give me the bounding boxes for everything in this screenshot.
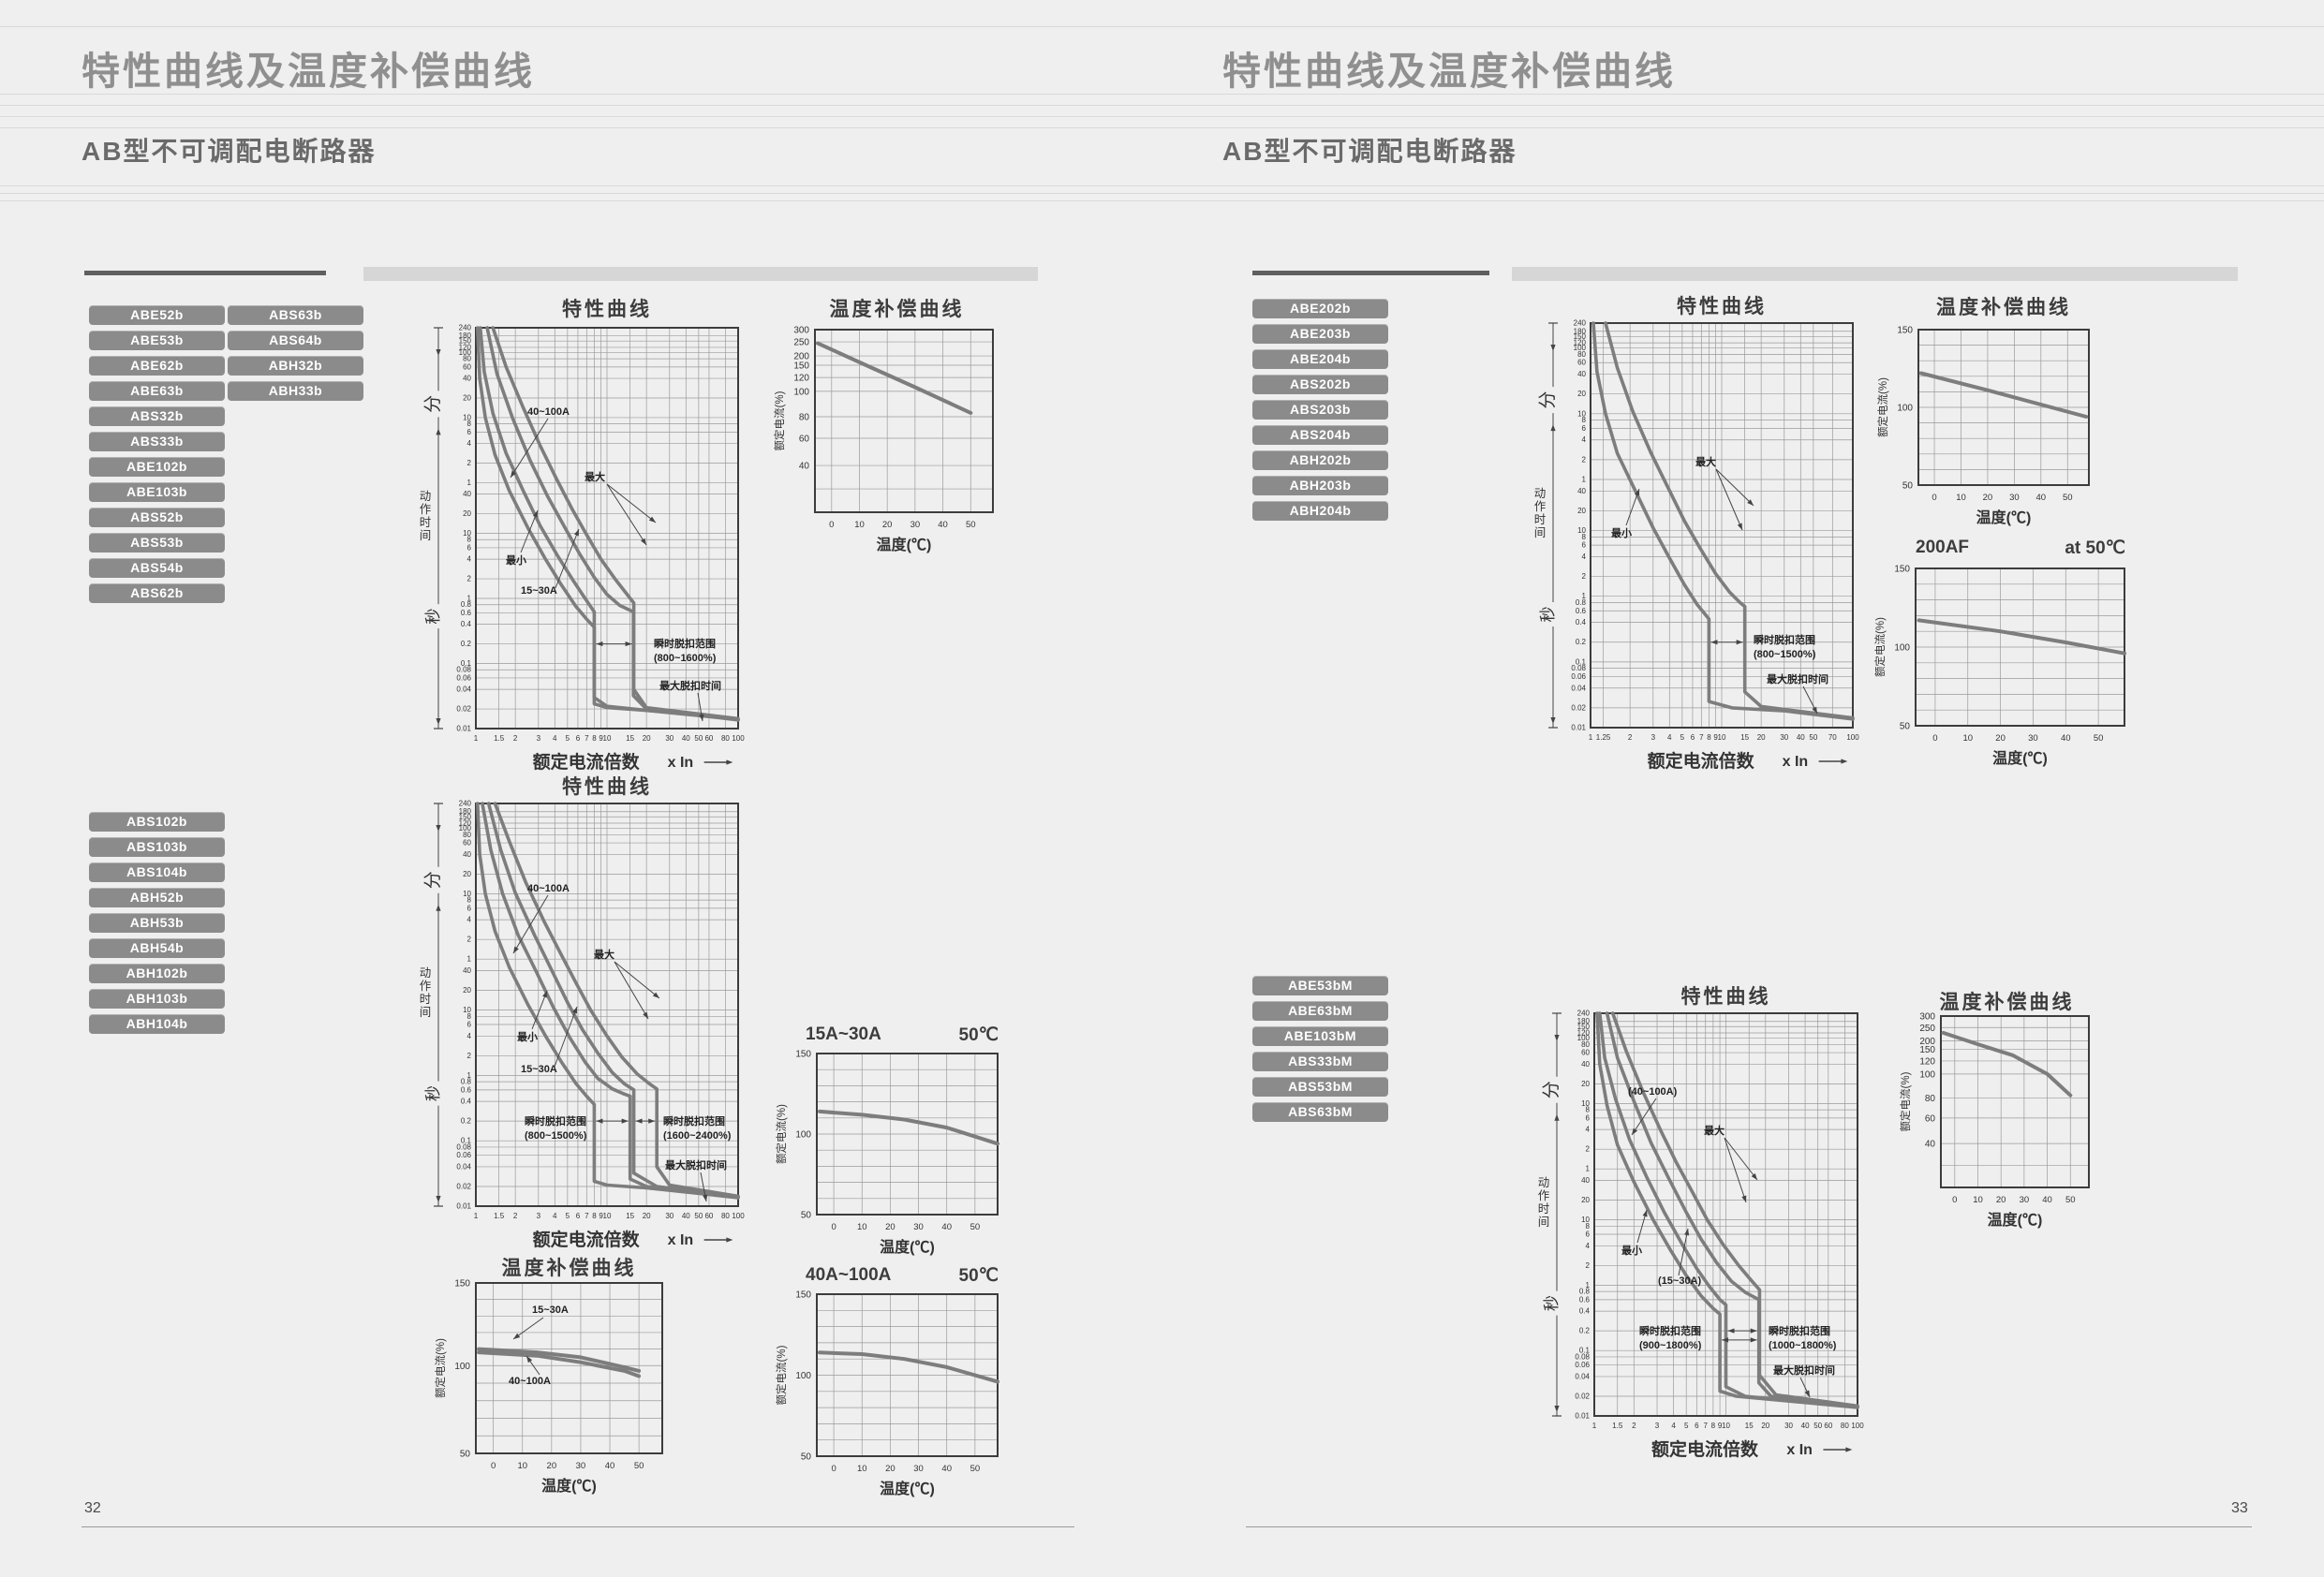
svg-text:60: 60 xyxy=(463,839,471,847)
svg-text:时: 时 xyxy=(420,516,432,529)
svg-text:40: 40 xyxy=(463,490,471,498)
svg-text:30: 30 xyxy=(2020,1195,2030,1205)
svg-text:20: 20 xyxy=(643,1212,651,1220)
svg-text:2: 2 xyxy=(1628,733,1633,742)
svg-text:8: 8 xyxy=(467,1012,472,1021)
svg-text:最大: 最大 xyxy=(585,470,605,483)
svg-text:50: 50 xyxy=(970,1222,981,1232)
svg-text:1: 1 xyxy=(474,734,479,743)
svg-text:8: 8 xyxy=(1586,1222,1591,1231)
svg-text:40: 40 xyxy=(1797,733,1805,742)
svg-text:分: 分 xyxy=(422,395,443,413)
svg-text:2: 2 xyxy=(513,1212,518,1220)
svg-text:240: 240 xyxy=(459,800,472,808)
svg-text:4: 4 xyxy=(1582,553,1587,561)
svg-text:0: 0 xyxy=(829,520,834,530)
svg-text:150: 150 xyxy=(795,1290,811,1301)
pinstripe xyxy=(0,185,2324,186)
svg-text:1.25: 1.25 xyxy=(1596,733,1611,742)
svg-text:4: 4 xyxy=(467,439,472,448)
model-badge: ABE53bM xyxy=(1252,976,1388,995)
svg-text:间: 间 xyxy=(420,1006,432,1019)
left-chart-40a-100a: 0102030405015010050额定电流(%)温度(℃) xyxy=(768,1281,1013,1516)
svg-text:4: 4 xyxy=(467,555,472,564)
svg-text:1: 1 xyxy=(474,1212,479,1220)
svg-text:20: 20 xyxy=(463,986,471,995)
model-badge: ABE62b xyxy=(89,356,225,376)
svg-text:间: 间 xyxy=(420,529,432,542)
model-badge: ABS102b xyxy=(89,812,225,832)
svg-text:20: 20 xyxy=(463,394,471,403)
svg-text:10: 10 xyxy=(857,1222,867,1232)
svg-text:50: 50 xyxy=(460,1450,471,1460)
svg-text:作: 作 xyxy=(1534,500,1547,513)
svg-text:1: 1 xyxy=(1582,475,1587,483)
svg-text:30: 30 xyxy=(2028,733,2038,744)
svg-text:10: 10 xyxy=(1956,493,1966,503)
svg-text:100: 100 xyxy=(1894,643,1910,654)
svg-text:4: 4 xyxy=(1586,1126,1591,1134)
svg-text:10: 10 xyxy=(1962,733,1973,744)
section-bar-left xyxy=(363,267,1038,281)
model-badge: ABH103b xyxy=(89,989,225,1009)
svg-text:80: 80 xyxy=(463,831,471,839)
svg-text:15: 15 xyxy=(1740,733,1749,742)
svg-text:50: 50 xyxy=(1813,1422,1822,1430)
pinstripe xyxy=(0,193,2324,194)
svg-text:0: 0 xyxy=(1932,493,1936,503)
svg-text:60: 60 xyxy=(1925,1113,1936,1124)
footer-rule-left xyxy=(81,1526,1074,1527)
svg-text:50: 50 xyxy=(2063,493,2073,503)
svg-text:动: 动 xyxy=(420,966,432,980)
svg-text:100: 100 xyxy=(454,1362,470,1372)
svg-text:60: 60 xyxy=(704,1212,713,1220)
svg-text:温度(℃): 温度(℃) xyxy=(879,1238,935,1256)
svg-text:50: 50 xyxy=(694,1212,703,1220)
svg-text:40: 40 xyxy=(2061,733,2071,744)
svg-text:瞬时脱扣范围: 瞬时脱扣范围 xyxy=(663,1114,725,1127)
svg-text:30: 30 xyxy=(2009,493,2020,503)
svg-text:0.06: 0.06 xyxy=(456,673,471,682)
svg-text:最小: 最小 xyxy=(506,553,526,567)
page-number-left: 32 xyxy=(84,1500,101,1517)
page-subtitle-left: AB型不可调配电断路器 xyxy=(81,131,376,169)
svg-text:8: 8 xyxy=(1711,1422,1716,1430)
svg-text:x In: x In xyxy=(1786,1442,1813,1458)
page-title-left: 特性曲线及温度补偿曲线 xyxy=(81,39,535,96)
svg-text:60: 60 xyxy=(1581,1049,1590,1057)
svg-text:2: 2 xyxy=(1586,1145,1591,1154)
svg-text:8: 8 xyxy=(1707,733,1711,742)
svg-text:40: 40 xyxy=(463,966,471,975)
footer-rule-right xyxy=(1246,1526,2252,1527)
svg-text:x In: x In xyxy=(1783,754,1809,770)
svg-text:40: 40 xyxy=(1577,487,1586,495)
svg-text:100: 100 xyxy=(1897,404,1913,414)
svg-text:3: 3 xyxy=(537,1212,541,1220)
svg-text:0.04: 0.04 xyxy=(1575,1372,1590,1380)
svg-text:温度(℃): 温度(℃) xyxy=(540,1477,597,1495)
svg-text:15: 15 xyxy=(1745,1422,1754,1430)
svg-text:10: 10 xyxy=(854,520,865,530)
svg-text:10: 10 xyxy=(1973,1195,1983,1205)
svg-text:额定电流(%): 额定电流(%) xyxy=(775,1104,788,1164)
svg-text:瞬时脱扣范围: 瞬时脱扣范围 xyxy=(1639,1324,1701,1337)
svg-text:20: 20 xyxy=(463,509,471,518)
svg-text:60: 60 xyxy=(1577,359,1586,367)
svg-text:秒: 秒 xyxy=(1539,607,1557,623)
svg-text:40: 40 xyxy=(1577,370,1586,378)
svg-text:时: 时 xyxy=(1538,1202,1550,1216)
model-badge: ABH54b xyxy=(89,938,225,958)
model-badge: ABE102b xyxy=(89,457,225,477)
model-badge: ABE53b xyxy=(89,331,225,350)
svg-text:5: 5 xyxy=(566,734,570,743)
right-temp-compensation-1: 0102030405015010050额定电流(%)温度(℃) xyxy=(1870,317,2104,545)
svg-text:时: 时 xyxy=(1534,513,1547,526)
svg-text:20: 20 xyxy=(1757,733,1766,742)
svg-text:300: 300 xyxy=(1919,1012,1935,1023)
svg-text:秒: 秒 xyxy=(1543,1295,1561,1311)
svg-text:动: 动 xyxy=(1538,1176,1550,1189)
svg-text:30: 30 xyxy=(1780,733,1788,742)
svg-text:7: 7 xyxy=(1699,733,1704,742)
left-temp-compensation-bottom: 0102030405015010050额定电流(%)温度(℃)15~30A40~… xyxy=(427,1270,677,1513)
svg-text:秒: 秒 xyxy=(424,609,442,625)
svg-text:10: 10 xyxy=(857,1464,867,1474)
svg-text:8: 8 xyxy=(592,1212,597,1220)
svg-text:40: 40 xyxy=(682,734,690,743)
svg-text:8: 8 xyxy=(1586,1106,1591,1114)
svg-text:20: 20 xyxy=(1996,1195,2006,1205)
svg-text:2: 2 xyxy=(467,1052,472,1060)
svg-text:最小: 最小 xyxy=(1621,1244,1642,1257)
svg-text:60: 60 xyxy=(799,435,810,445)
pinstripe xyxy=(0,200,2324,201)
model-badge-list: ABE52bABE53bABE62bABE63bABS32bABS33bABE1… xyxy=(89,305,225,603)
svg-text:40: 40 xyxy=(1581,1060,1590,1069)
svg-text:时: 时 xyxy=(420,993,432,1006)
right-chart-200af: 0102030405015010050额定电流(%)温度(℃) xyxy=(1867,555,2139,786)
svg-text:4: 4 xyxy=(1667,733,1672,742)
svg-text:50: 50 xyxy=(970,1464,981,1474)
svg-text:6: 6 xyxy=(1582,424,1587,433)
svg-text:(15~30A): (15~30A) xyxy=(1658,1275,1702,1287)
model-badge: ABS52b xyxy=(89,508,225,527)
svg-text:150: 150 xyxy=(1894,565,1910,575)
svg-text:40: 40 xyxy=(682,1212,690,1220)
svg-text:间: 间 xyxy=(1538,1216,1550,1229)
svg-text:40: 40 xyxy=(941,1222,952,1232)
svg-text:100: 100 xyxy=(1919,1069,1935,1080)
model-badge: ABS33b xyxy=(89,432,225,451)
svg-text:100: 100 xyxy=(732,1212,745,1220)
svg-text:8: 8 xyxy=(1582,533,1587,541)
svg-text:6: 6 xyxy=(467,543,472,552)
svg-text:0.08: 0.08 xyxy=(456,666,471,674)
svg-text:温度(℃): 温度(℃) xyxy=(876,536,932,553)
svg-text:0.08: 0.08 xyxy=(1571,664,1586,672)
svg-text:6: 6 xyxy=(467,1021,472,1029)
svg-text:150: 150 xyxy=(793,361,809,372)
svg-text:(800~1500%): (800~1500%) xyxy=(1754,649,1816,660)
svg-text:50: 50 xyxy=(694,734,703,743)
svg-text:100: 100 xyxy=(1851,1422,1864,1430)
svg-text:100: 100 xyxy=(793,387,809,397)
svg-text:4: 4 xyxy=(467,1032,472,1040)
svg-text:6: 6 xyxy=(1695,1422,1699,1430)
svg-text:10: 10 xyxy=(603,1212,612,1220)
svg-text:最大脱扣时间: 最大脱扣时间 xyxy=(665,1158,727,1172)
svg-text:额定电流(%): 额定电流(%) xyxy=(773,391,786,450)
svg-text:50: 50 xyxy=(966,520,976,530)
svg-text:0.8: 0.8 xyxy=(461,600,472,609)
pinstripe xyxy=(0,116,2324,117)
svg-text:5: 5 xyxy=(1684,1422,1689,1430)
model-badge: ABH32b xyxy=(228,356,363,376)
page-number-right: 33 xyxy=(2231,1500,2248,1517)
svg-text:40: 40 xyxy=(938,520,948,530)
svg-text:2: 2 xyxy=(467,575,472,583)
model-badge-list: ABS102bABS103bABS104bABH52bABH53bABH54bA… xyxy=(89,812,225,1034)
model-badge: ABS54b xyxy=(89,558,225,578)
svg-text:温度(℃): 温度(℃) xyxy=(879,1480,935,1497)
svg-text:15~30A: 15~30A xyxy=(521,1064,557,1075)
svg-text:30: 30 xyxy=(913,1464,924,1474)
model-badge: ABS202b xyxy=(1252,375,1388,394)
svg-text:300: 300 xyxy=(793,326,809,336)
model-badge: ABH102b xyxy=(89,964,225,983)
svg-text:1.5: 1.5 xyxy=(494,734,505,743)
svg-text:20: 20 xyxy=(1577,507,1586,515)
model-badge: ABE103b xyxy=(89,482,225,502)
svg-text:0.02: 0.02 xyxy=(456,1182,471,1190)
model-badge: ABS63bM xyxy=(1252,1102,1388,1122)
svg-text:30: 30 xyxy=(665,1212,674,1220)
svg-text:0.01: 0.01 xyxy=(1575,1412,1590,1421)
svg-text:动: 动 xyxy=(420,490,432,503)
svg-text:1: 1 xyxy=(1586,1165,1591,1173)
svg-text:2: 2 xyxy=(1582,455,1587,464)
svg-text:0.2: 0.2 xyxy=(1576,638,1587,646)
svg-text:40: 40 xyxy=(605,1461,615,1471)
svg-text:15~30A: 15~30A xyxy=(521,585,557,597)
svg-text:240: 240 xyxy=(1574,319,1587,328)
svg-text:1: 1 xyxy=(1592,1422,1597,1430)
svg-text:x In: x In xyxy=(668,755,694,771)
model-badge: ABH53b xyxy=(89,913,225,933)
pinstripe xyxy=(0,127,2324,128)
svg-text:20: 20 xyxy=(463,870,471,878)
svg-text:额定电流倍数: 额定电流倍数 xyxy=(1651,1438,1759,1460)
svg-text:额定电流(%): 额定电流(%) xyxy=(1876,377,1889,437)
svg-text:0.04: 0.04 xyxy=(456,1162,471,1171)
catalog-spread: 特性曲线及温度补偿曲线 AB型不可调配电断路器 ABE52bABE53bABE6… xyxy=(0,0,2324,1577)
left-chart-15a-30a: 0102030405015010050额定电流(%)温度(℃) xyxy=(768,1040,1013,1275)
svg-text:0: 0 xyxy=(1952,1195,1957,1205)
svg-text:温度(℃): 温度(℃) xyxy=(1976,508,2032,526)
svg-text:6: 6 xyxy=(467,904,472,912)
svg-text:最大: 最大 xyxy=(594,948,614,961)
svg-text:100: 100 xyxy=(732,734,745,743)
model-badge: ABS103b xyxy=(89,837,225,857)
svg-text:20: 20 xyxy=(1983,493,1993,503)
svg-text:最大: 最大 xyxy=(1704,1124,1724,1137)
svg-text:0.01: 0.01 xyxy=(456,1202,471,1211)
svg-text:3: 3 xyxy=(1651,733,1656,742)
svg-text:20: 20 xyxy=(885,1464,896,1474)
svg-text:70: 70 xyxy=(1828,733,1837,742)
svg-text:20: 20 xyxy=(1577,390,1586,398)
svg-text:0.2: 0.2 xyxy=(461,640,472,648)
svg-text:4: 4 xyxy=(1671,1422,1676,1430)
svg-text:最大脱扣时间: 最大脱扣时间 xyxy=(1773,1363,1835,1377)
svg-text:100: 100 xyxy=(1846,733,1859,742)
svg-text:1: 1 xyxy=(1589,733,1593,742)
svg-text:6: 6 xyxy=(1586,1231,1591,1239)
svg-text:0.4: 0.4 xyxy=(461,1098,472,1106)
svg-text:0.01: 0.01 xyxy=(456,725,471,733)
svg-text:250: 250 xyxy=(1919,1024,1935,1034)
model-badge: ABH33b xyxy=(228,381,363,401)
svg-text:10: 10 xyxy=(1722,1422,1730,1430)
svg-text:80: 80 xyxy=(1841,1422,1849,1430)
svg-text:40: 40 xyxy=(2036,493,2047,503)
svg-text:40~100A: 40~100A xyxy=(527,883,570,894)
svg-text:瞬时脱扣范围: 瞬时脱扣范围 xyxy=(525,1114,586,1127)
svg-text:2: 2 xyxy=(467,459,472,467)
section-rule-left xyxy=(84,271,326,275)
svg-text:80: 80 xyxy=(463,355,471,363)
svg-text:5: 5 xyxy=(1680,733,1685,742)
svg-text:6: 6 xyxy=(1582,541,1587,550)
svg-text:1: 1 xyxy=(467,955,472,964)
svg-text:0.4: 0.4 xyxy=(461,620,472,628)
svg-text:80: 80 xyxy=(799,413,810,423)
svg-text:40: 40 xyxy=(463,850,471,859)
svg-text:250: 250 xyxy=(793,338,809,348)
svg-text:0.6: 0.6 xyxy=(461,1085,472,1094)
left-temp-compensation-1: 01020304050300250200150120100806040额定电流(… xyxy=(766,317,1008,572)
svg-text:0.8: 0.8 xyxy=(461,1078,472,1086)
svg-text:8: 8 xyxy=(467,420,472,428)
svg-text:0.04: 0.04 xyxy=(1571,684,1586,692)
svg-text:最大脱扣时间: 最大脱扣时间 xyxy=(659,679,721,692)
svg-text:瞬时脱扣范围: 瞬时脱扣范围 xyxy=(1754,633,1815,646)
model-badge: ABE204b xyxy=(1252,349,1388,369)
svg-text:60: 60 xyxy=(704,734,713,743)
svg-text:150: 150 xyxy=(1919,1045,1935,1055)
svg-text:8: 8 xyxy=(1582,416,1587,424)
svg-text:40: 40 xyxy=(941,1464,952,1474)
svg-text:40: 40 xyxy=(1801,1422,1810,1430)
left-characteristic-curve-2: 2401801501201008060402010864214020108642… xyxy=(408,790,751,1279)
model-badge: ABS33bM xyxy=(1252,1052,1388,1071)
svg-text:80: 80 xyxy=(1581,1040,1590,1049)
svg-text:额定电流倍数: 额定电流倍数 xyxy=(533,751,641,773)
svg-text:30: 30 xyxy=(910,520,921,530)
svg-text:0.08: 0.08 xyxy=(1575,1352,1590,1361)
svg-text:作: 作 xyxy=(1538,1189,1550,1202)
right-temp-compensation-bottom: 01020304050300250200150120100806040额定电流(… xyxy=(1892,1003,2104,1247)
svg-text:30: 30 xyxy=(913,1222,924,1232)
section-bar-right xyxy=(1512,267,2238,281)
svg-text:50: 50 xyxy=(1902,481,1914,492)
svg-text:20: 20 xyxy=(547,1461,557,1471)
svg-text:10: 10 xyxy=(1718,733,1726,742)
svg-text:1.5: 1.5 xyxy=(494,1212,505,1220)
svg-text:240: 240 xyxy=(1577,1010,1591,1018)
svg-text:150: 150 xyxy=(1897,326,1913,336)
svg-text:作: 作 xyxy=(420,503,432,516)
svg-text:2: 2 xyxy=(513,734,518,743)
svg-text:20: 20 xyxy=(885,1222,896,1232)
svg-text:50: 50 xyxy=(1809,733,1817,742)
svg-text:0.8: 0.8 xyxy=(1579,1288,1591,1296)
svg-text:作: 作 xyxy=(420,980,432,993)
svg-text:50: 50 xyxy=(2065,1195,2076,1205)
svg-text:额定电流倍数: 额定电流倍数 xyxy=(533,1229,641,1250)
svg-text:40: 40 xyxy=(463,375,471,383)
svg-text:0.6: 0.6 xyxy=(461,609,472,617)
model-badge-list: ABS63bABS64bABH32bABH33b xyxy=(228,305,363,401)
model-badge: ABS204b xyxy=(1252,425,1388,445)
svg-text:120: 120 xyxy=(793,374,809,384)
svg-text:2: 2 xyxy=(1582,572,1587,581)
svg-text:120: 120 xyxy=(1919,1056,1935,1067)
svg-text:40: 40 xyxy=(2042,1195,2052,1205)
svg-text:x In: x In xyxy=(668,1232,694,1248)
svg-text:0.06: 0.06 xyxy=(1571,672,1586,681)
svg-text:0.06: 0.06 xyxy=(456,1151,471,1159)
model-badge: ABH52b xyxy=(89,888,225,907)
model-badge: ABS62b xyxy=(89,583,225,603)
svg-text:0.01: 0.01 xyxy=(1571,724,1586,732)
model-badge: ABS63b xyxy=(228,305,363,325)
svg-text:(40~100A): (40~100A) xyxy=(1628,1086,1678,1098)
svg-text:0.2: 0.2 xyxy=(1579,1327,1591,1335)
svg-text:温度(℃): 温度(℃) xyxy=(1991,749,2048,767)
svg-text:0.02: 0.02 xyxy=(1571,703,1586,712)
svg-text:15~30A: 15~30A xyxy=(532,1304,569,1316)
svg-text:0.04: 0.04 xyxy=(456,685,471,694)
svg-text:6: 6 xyxy=(467,428,472,436)
svg-text:20: 20 xyxy=(1581,1080,1590,1088)
svg-text:额定电流(%): 额定电流(%) xyxy=(1873,617,1887,677)
model-badge: ABE63b xyxy=(89,381,225,401)
svg-text:8: 8 xyxy=(467,896,472,905)
svg-text:0: 0 xyxy=(1932,733,1937,744)
model-badge: ABE63bM xyxy=(1252,1001,1388,1021)
model-badge: ABH104b xyxy=(89,1014,225,1034)
svg-text:额定电流倍数: 额定电流倍数 xyxy=(1648,750,1755,772)
svg-text:秒: 秒 xyxy=(424,1085,442,1101)
pinstripe xyxy=(0,26,2324,27)
model-badge: ABS53b xyxy=(89,533,225,553)
svg-text:80: 80 xyxy=(1925,1094,1936,1104)
svg-text:8: 8 xyxy=(467,536,472,544)
svg-text:额定电流(%): 额定电流(%) xyxy=(1899,1071,1912,1131)
model-badge: ABE203b xyxy=(1252,324,1388,344)
model-badge: ABH203b xyxy=(1252,476,1388,495)
svg-text:50: 50 xyxy=(801,1452,812,1463)
svg-text:4: 4 xyxy=(1582,435,1587,444)
svg-text:间: 间 xyxy=(1534,526,1547,539)
svg-text:0.2: 0.2 xyxy=(461,1117,472,1126)
model-badge: ABE52b xyxy=(89,305,225,325)
model-badge: ABS53bM xyxy=(1252,1077,1388,1097)
